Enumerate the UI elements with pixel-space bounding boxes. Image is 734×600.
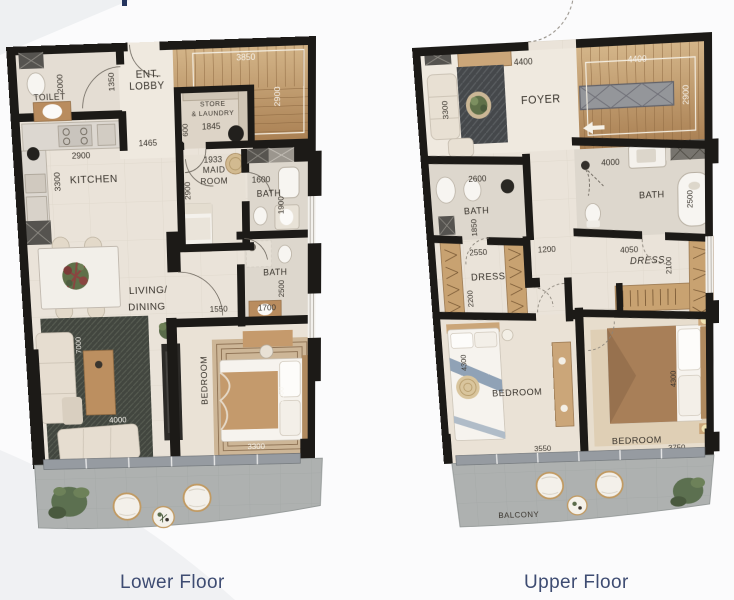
svg-text:2500: 2500 [686, 190, 695, 209]
svg-text:2500: 2500 [277, 279, 286, 297]
svg-text:MAID: MAID [203, 164, 226, 175]
svg-text:4300: 4300 [459, 354, 468, 371]
svg-text:1700: 1700 [258, 303, 276, 313]
svg-text:DRESS: DRESS [630, 255, 665, 267]
svg-text:1933: 1933 [204, 154, 223, 164]
svg-text:3300: 3300 [248, 442, 265, 451]
svg-text:2900: 2900 [72, 150, 91, 160]
svg-text:ROOM: ROOM [200, 176, 228, 187]
svg-text:1465: 1465 [138, 138, 157, 149]
svg-text:2000: 2000 [55, 74, 65, 94]
svg-text:ENT.: ENT. [136, 69, 160, 81]
svg-text:BEDROOM: BEDROOM [612, 436, 662, 447]
svg-text:2100: 2100 [665, 256, 674, 274]
svg-text:2550: 2550 [469, 247, 487, 257]
svg-text:4300: 4300 [669, 370, 677, 387]
svg-text:2600: 2600 [468, 173, 487, 184]
svg-text:3300: 3300 [52, 172, 62, 192]
svg-text:2200: 2200 [466, 290, 475, 308]
svg-text:3300: 3300 [441, 100, 451, 119]
svg-text:1550: 1550 [210, 304, 228, 314]
svg-text:7000: 7000 [73, 336, 83, 353]
svg-text:2900: 2900 [183, 181, 193, 200]
svg-text:3550: 3550 [534, 444, 551, 453]
svg-text:2900: 2900 [681, 84, 691, 105]
svg-text:STORE: STORE [200, 100, 226, 109]
svg-text:BATH: BATH [263, 266, 287, 277]
svg-text:1200: 1200 [538, 244, 556, 254]
svg-text:BEDROOM: BEDROOM [492, 388, 542, 399]
svg-text:DRESS: DRESS [471, 272, 506, 284]
svg-text:4400: 4400 [514, 56, 533, 67]
svg-text:FOYER: FOYER [521, 93, 561, 107]
svg-text:4050: 4050 [620, 245, 638, 255]
svg-text:4000: 4000 [276, 386, 285, 403]
svg-text:& LAUNDRY: & LAUNDRY [192, 109, 235, 118]
svg-text:3850: 3850 [236, 52, 255, 63]
svg-text:600: 600 [181, 123, 190, 137]
svg-text:BALCONY: BALCONY [498, 510, 539, 519]
svg-text:LOBBY: LOBBY [129, 80, 165, 92]
svg-text:1900: 1900 [276, 196, 285, 215]
svg-text:BATH: BATH [464, 206, 490, 218]
svg-text:1845: 1845 [202, 121, 221, 132]
svg-text:BATH: BATH [639, 189, 665, 201]
svg-text:DINING: DINING [128, 301, 166, 313]
svg-text:KITCHEN: KITCHEN [70, 173, 118, 186]
svg-text:1850: 1850 [470, 218, 479, 236]
svg-text:1350: 1350 [106, 72, 116, 92]
svg-text:4000: 4000 [109, 415, 127, 424]
svg-text:1600: 1600 [252, 174, 271, 184]
svg-text:2900: 2900 [272, 86, 282, 106]
svg-text:LIVING/: LIVING/ [129, 285, 168, 297]
svg-text:4000: 4000 [601, 157, 620, 168]
svg-text:4400: 4400 [628, 53, 647, 64]
svg-text:BEDROOM: BEDROOM [199, 356, 210, 405]
